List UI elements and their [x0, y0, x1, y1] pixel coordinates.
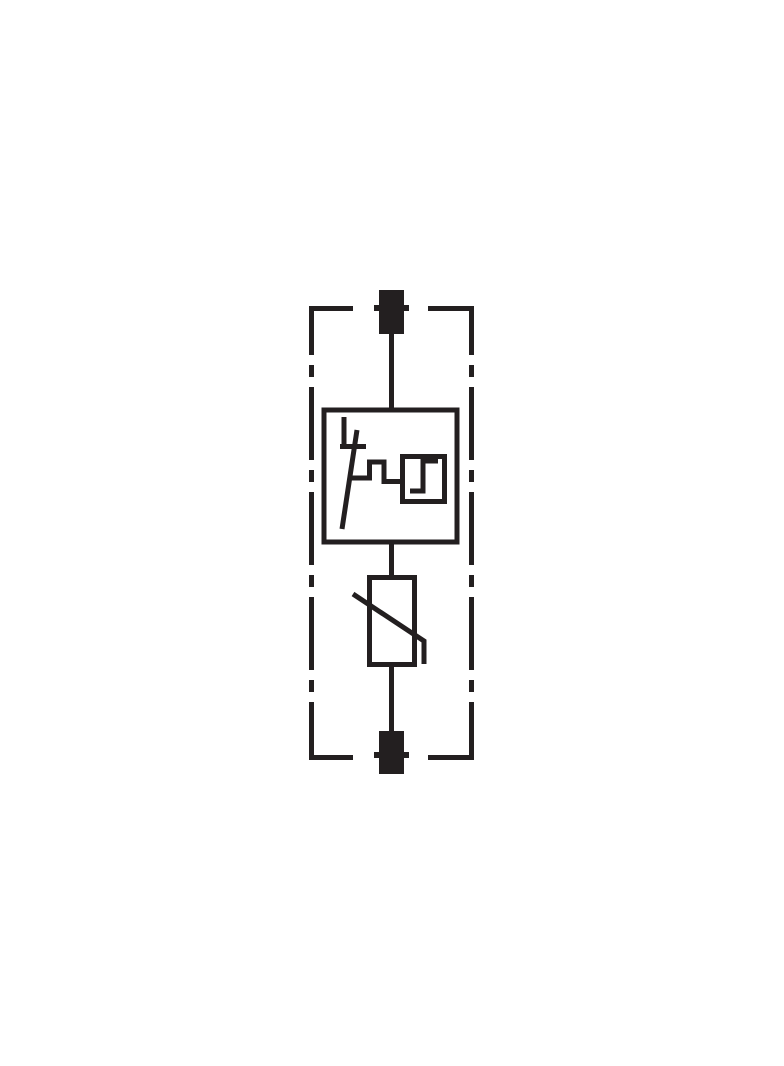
varistor-symbol [353, 578, 424, 665]
schematic-svg [0, 0, 784, 1066]
bottom-terminal-block [379, 731, 404, 774]
thermal-disconnector-symbol [324, 410, 457, 542]
disconnector-monitor-link [350, 462, 402, 482]
schematic-linework [309, 306, 474, 760]
top-terminal-left-lug [374, 305, 379, 311]
top-terminal [374, 290, 409, 334]
circuit-diagram [0, 0, 784, 1066]
step-function-glyph [410, 461, 438, 491]
top-terminal-block [379, 290, 404, 334]
top-terminal-right-lug [404, 305, 409, 311]
bottom-terminal-left-lug [374, 752, 379, 758]
bottom-terminal-right-lug [404, 752, 409, 758]
bottom-terminal [374, 731, 409, 774]
